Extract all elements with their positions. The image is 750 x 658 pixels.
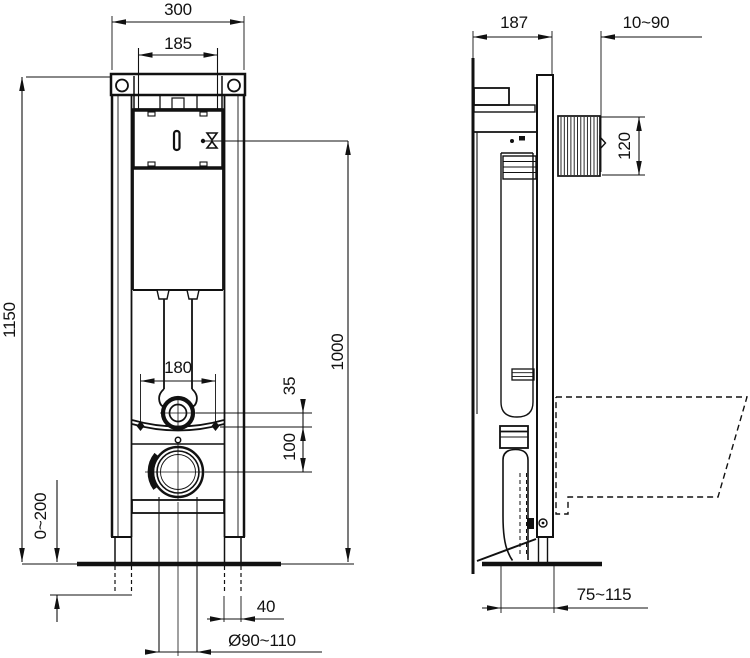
dim-label-180: 180 (164, 358, 192, 377)
dim-label-1150: 1150 (0, 302, 19, 338)
dim-label-120: 120 (615, 132, 634, 160)
dim-label-187: 187 (500, 13, 528, 32)
dim-label-100: 100 (280, 433, 299, 461)
dim-label-300: 300 (164, 0, 192, 19)
dim-label-35: 35 (280, 377, 299, 396)
dim-label-40: 40 (257, 597, 276, 616)
dim-label-1000: 1000 (328, 333, 347, 370)
installation-frame-drawing: 300 185 1150 1000 180 (0, 0, 750, 658)
dim-label-outlet-diameter: Ø90~110 (228, 631, 296, 650)
dim-label-75-115: 75~115 (577, 585, 632, 604)
access-panel (133, 110, 223, 168)
technical-drawing-page: 300 185 1150 1000 180 (0, 0, 750, 658)
valve-reference-point (201, 139, 205, 143)
dim-label-0-200: 0~200 (31, 493, 50, 540)
dim-label-185: 185 (164, 34, 192, 53)
wall-sleeve (558, 116, 606, 176)
dim-label-10-90: 10~90 (623, 13, 670, 32)
